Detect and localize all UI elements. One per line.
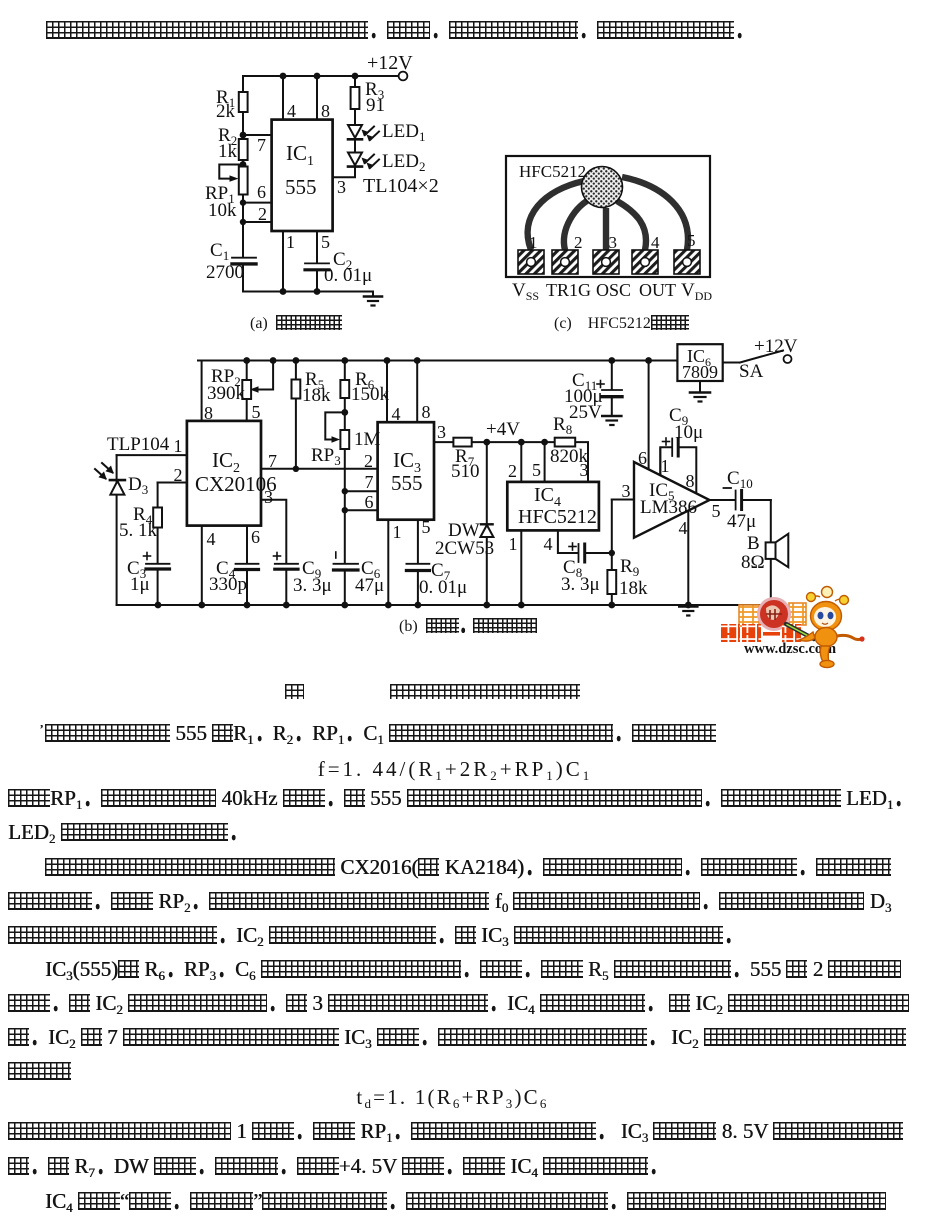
svg-text:4: 4: [544, 534, 553, 554]
svg-text:+12V: +12V: [754, 336, 798, 357]
svg-text:3: 3: [264, 487, 273, 507]
svg-text:D3: D3: [128, 474, 148, 497]
svg-text:OSC: OSC: [596, 280, 631, 300]
svg-text:1μ: 1μ: [130, 574, 150, 595]
svg-text:3: 3: [580, 460, 589, 480]
svg-text:HFC5212: HFC5212: [518, 506, 597, 528]
svg-text:2k: 2k: [216, 101, 236, 122]
svg-text:4: 4: [679, 518, 688, 538]
svg-text:4: 4: [392, 404, 401, 424]
svg-text:+12V: +12V: [367, 52, 413, 74]
svg-text:R9: R9: [620, 556, 639, 579]
svg-text:47μ: 47μ: [727, 511, 756, 532]
svg-text:LED2: LED2: [382, 151, 425, 174]
svg-text:330p: 330p: [209, 574, 247, 595]
svg-text:2: 2: [508, 461, 517, 481]
svg-text:SA: SA: [739, 361, 764, 382]
svg-text:555: 555: [391, 471, 423, 495]
svg-text:4: 4: [287, 101, 296, 121]
svg-text:0. 01μ: 0. 01μ: [324, 265, 372, 286]
svg-text:7: 7: [365, 472, 374, 492]
svg-text:47μ: 47μ: [355, 575, 384, 596]
svg-text:4: 4: [651, 233, 660, 252]
svg-text:10k: 10k: [208, 200, 237, 221]
svg-text:3: 3: [609, 233, 618, 252]
svg-text:8Ω: 8Ω: [741, 552, 765, 573]
svg-text:10μ: 10μ: [674, 422, 703, 443]
svg-text:3: 3: [337, 177, 346, 197]
svg-text:7: 7: [257, 135, 266, 155]
svg-text:C10: C10: [727, 468, 753, 491]
svg-text:1: 1: [529, 233, 538, 252]
svg-text:2: 2: [174, 465, 183, 485]
svg-text:18k: 18k: [619, 578, 648, 599]
svg-text:B: B: [747, 533, 760, 554]
svg-text:2700: 2700: [206, 262, 244, 283]
svg-text:VDD: VDD: [681, 280, 712, 303]
svg-text:5: 5: [712, 501, 721, 521]
svg-text:18k: 18k: [302, 385, 331, 406]
svg-text:3: 3: [622, 481, 631, 501]
svg-text:8: 8: [321, 101, 330, 121]
svg-text:5: 5: [321, 232, 330, 252]
svg-text:8: 8: [204, 403, 213, 423]
svg-text:510: 510: [451, 461, 480, 482]
svg-text:5: 5: [532, 460, 541, 480]
svg-text:5. 1k: 5. 1k: [119, 520, 158, 541]
svg-text:VSS: VSS: [512, 280, 539, 303]
svg-text:www.dzsc.co: www.dzsc.co: [744, 641, 822, 657]
svg-text:1: 1: [393, 522, 402, 542]
svg-text:C1: C1: [210, 240, 229, 263]
svg-text:6: 6: [638, 448, 647, 468]
svg-text:RP3: RP3: [311, 445, 341, 468]
svg-text:6: 6: [365, 492, 374, 512]
svg-text:OUT: OUT: [639, 280, 676, 300]
svg-text:8: 8: [686, 471, 695, 491]
svg-text:390k: 390k: [207, 383, 246, 404]
svg-text:3. 3μ: 3. 3μ: [561, 574, 600, 595]
svg-text:2: 2: [574, 233, 583, 252]
svg-text:TLP104: TLP104: [107, 434, 170, 455]
svg-text:5: 5: [687, 231, 696, 250]
svg-text:2: 2: [364, 451, 373, 471]
svg-text:6: 6: [251, 527, 260, 547]
svg-text:8: 8: [422, 402, 431, 422]
svg-text:TL104×2: TL104×2: [363, 175, 439, 197]
svg-text:91: 91: [366, 95, 385, 116]
svg-text:25V: 25V: [569, 402, 602, 423]
svg-text:3. 3μ: 3. 3μ: [293, 575, 332, 596]
svg-text:4: 4: [207, 529, 216, 549]
svg-text:5: 5: [252, 402, 261, 422]
svg-text:2: 2: [258, 204, 267, 224]
svg-text:1: 1: [286, 232, 295, 252]
svg-text:0. 01μ: 0. 01μ: [419, 577, 467, 598]
svg-text:+4V: +4V: [486, 419, 520, 440]
svg-text:TR1G: TR1G: [546, 280, 591, 300]
svg-text:LED1: LED1: [382, 121, 425, 144]
svg-text:6: 6: [257, 182, 266, 202]
svg-text:1: 1: [174, 436, 183, 456]
svg-text:2CW53: 2CW53: [435, 538, 494, 559]
svg-text:3: 3: [437, 422, 446, 442]
svg-text:LM386: LM386: [640, 497, 697, 518]
svg-text:7: 7: [268, 451, 277, 471]
svg-text:5: 5: [422, 517, 431, 537]
svg-text:7809: 7809: [682, 362, 718, 382]
svg-text:1: 1: [661, 456, 670, 476]
svg-text:HFC5212: HFC5212: [519, 162, 586, 181]
svg-text:150k: 150k: [351, 384, 390, 405]
svg-text:1M: 1M: [354, 429, 381, 450]
svg-text:1k: 1k: [218, 141, 238, 162]
svg-text:555: 555: [285, 175, 317, 199]
svg-text:1: 1: [509, 534, 518, 554]
